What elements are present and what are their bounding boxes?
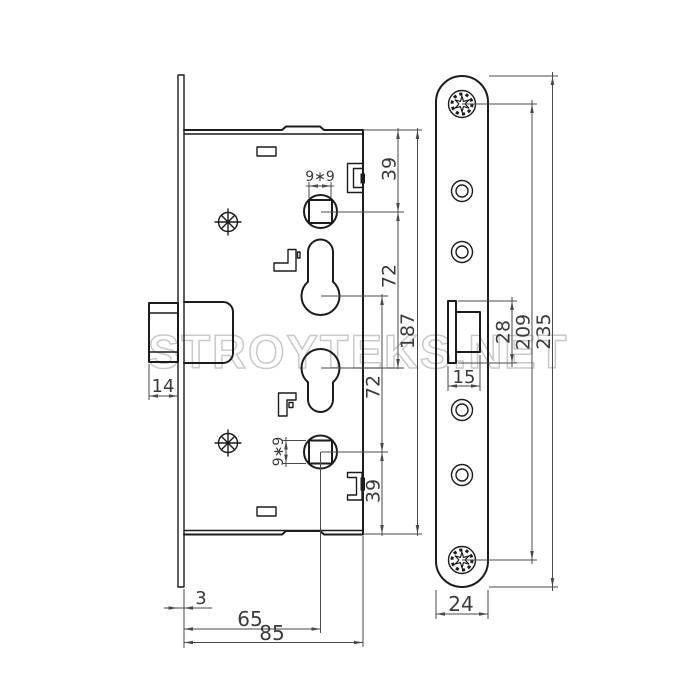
- dim-3: 3: [195, 588, 206, 609]
- dim-39-bottom: 39: [363, 479, 385, 503]
- fixing-screw-top: [215, 209, 241, 235]
- dim-9x9-top: 9∗9: [305, 169, 335, 185]
- case-bottom-edge: [184, 531, 363, 535]
- dim-15: 15: [453, 367, 476, 388]
- dim-28: 28: [493, 320, 515, 344]
- dim-72-top: 72: [379, 264, 401, 288]
- dim-24: 24: [448, 592, 473, 616]
- screw-hole-1: [452, 181, 473, 202]
- lock-technical-drawing: STROYTEKS.NET: [0, 0, 700, 700]
- slot-top: [257, 147, 276, 156]
- drawing-canvas: STROYTEKS.NET: [0, 0, 700, 700]
- dim-187: 187: [397, 313, 419, 349]
- screw-hole-3: [452, 400, 473, 421]
- cylinder-keyhole-top: [301, 240, 339, 316]
- dim-39-top: 39: [379, 157, 401, 181]
- screw-hole-4: [452, 465, 473, 486]
- dim-9x9-bottom: 9∗9: [271, 437, 287, 467]
- slot-bottom: [257, 507, 276, 516]
- screw-hole-2: [452, 242, 473, 263]
- step-bracket-bottom: [279, 393, 297, 416]
- dim-14: 14: [152, 376, 175, 397]
- fixing-screw-bottom: [215, 430, 241, 456]
- dim-85: 85: [259, 621, 284, 645]
- case-top-edge: [184, 127, 363, 131]
- dim-209: 209: [513, 314, 535, 350]
- dim-72-bottom: 72: [363, 375, 385, 399]
- dim-235: 235: [533, 313, 555, 349]
- step-bracket-top: [274, 250, 300, 272]
